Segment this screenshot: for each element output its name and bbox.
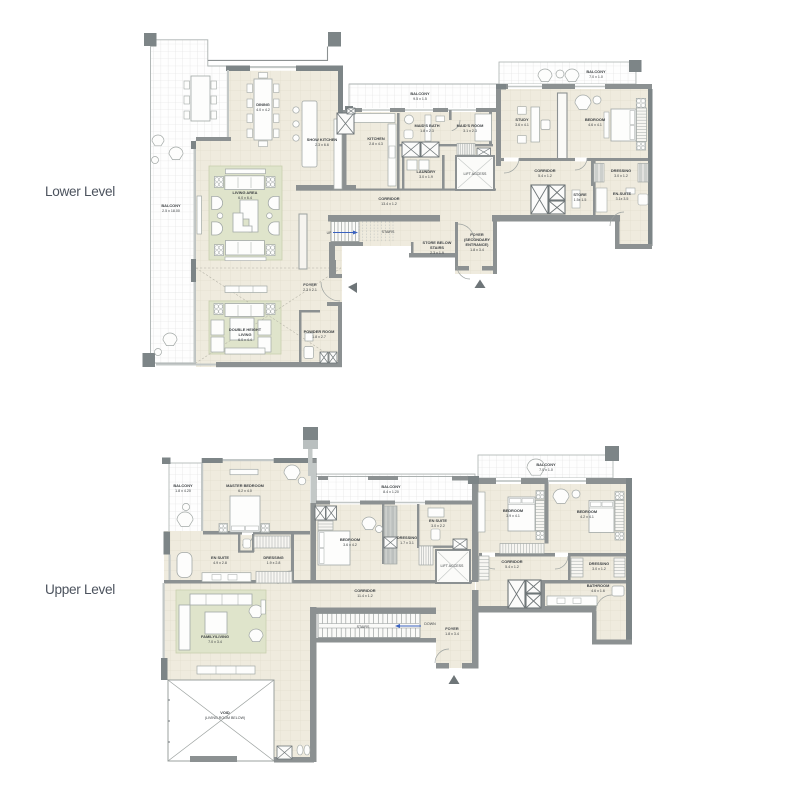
svg-text:DRESSING: DRESSING bbox=[589, 561, 609, 566]
svg-text:EN-SUITE: EN-SUITE bbox=[613, 191, 632, 196]
svg-text:2.3 x 1.9: 2.3 x 1.9 bbox=[430, 251, 444, 255]
svg-text:FOYER: FOYER bbox=[303, 282, 317, 287]
svg-text:3.0 x 2.2: 3.0 x 2.2 bbox=[431, 524, 445, 528]
svg-text:LAUNDRY: LAUNDRY bbox=[417, 169, 436, 174]
svg-text:2.3 x 2.1: 2.3 x 2.1 bbox=[303, 288, 317, 292]
svg-text:BATHROOM: BATHROOM bbox=[587, 583, 610, 588]
svg-text:LIVING: LIVING bbox=[239, 332, 252, 337]
svg-text:2.3 x 6.6: 2.3 x 6.6 bbox=[315, 143, 329, 147]
svg-text:4.9 x 2.8: 4.9 x 2.8 bbox=[213, 561, 227, 565]
svg-text:6.2 x 4.0: 6.2 x 4.0 bbox=[238, 489, 252, 493]
svg-text:VOID: VOID bbox=[220, 710, 230, 715]
svg-text:MAID'S ROOM: MAID'S ROOM bbox=[457, 123, 484, 128]
svg-text:3.6 x 4.1: 3.6 x 4.1 bbox=[515, 123, 529, 127]
svg-text:3.6 x 4.2: 3.6 x 4.2 bbox=[343, 543, 357, 547]
svg-text:Lower Level: Lower Level bbox=[45, 184, 115, 199]
svg-text:CORRIDOR: CORRIDOR bbox=[534, 168, 555, 173]
svg-text:KITCHEN: KITCHEN bbox=[367, 136, 384, 141]
svg-text:1.8 x 2.3: 1.8 x 2.3 bbox=[420, 129, 434, 133]
svg-text:DINING: DINING bbox=[256, 102, 270, 107]
svg-text:EN SUITE: EN SUITE bbox=[211, 555, 229, 560]
svg-text:POWDER ROOM: POWDER ROOM bbox=[304, 329, 335, 334]
svg-text:3.1x 3.5: 3.1x 3.5 bbox=[616, 197, 629, 201]
svg-text:1.7 x 3.1: 1.7 x 3.1 bbox=[400, 541, 414, 545]
svg-text:DRESSING: DRESSING bbox=[397, 535, 417, 540]
svg-text:FAMILY/LIVING: FAMILY/LIVING bbox=[201, 634, 229, 639]
svg-text:5.4 x 1.2: 5.4 x 1.2 bbox=[538, 174, 552, 178]
svg-text:1.8 x 2.7: 1.8 x 2.7 bbox=[312, 335, 326, 339]
svg-text:STUDY: STUDY bbox=[515, 117, 529, 122]
svg-text:7.0 x 1.0: 7.0 x 1.0 bbox=[539, 468, 553, 472]
svg-text:LIFT ACCESS: LIFT ACCESS bbox=[464, 172, 488, 176]
svg-text:BALCONY: BALCONY bbox=[586, 69, 606, 74]
svg-text:6.0 x 4.4: 6.0 x 4.4 bbox=[238, 338, 252, 342]
svg-text:7.0 x 3.4: 7.0 x 3.4 bbox=[208, 640, 222, 644]
svg-text:SHOW KITCHEN: SHOW KITCHEN bbox=[307, 137, 338, 142]
svg-text:CORRIDOR: CORRIDOR bbox=[378, 196, 399, 201]
svg-text:DRESSING: DRESSING bbox=[263, 555, 283, 560]
svg-text:8.4 x 1.20: 8.4 x 1.20 bbox=[383, 490, 399, 494]
svg-text:UP: UP bbox=[327, 231, 332, 235]
svg-text:BEDROOM: BEDROOM bbox=[577, 509, 597, 514]
svg-text:DOWN: DOWN bbox=[424, 622, 436, 626]
svg-text:4.6 x 1.6: 4.6 x 1.6 bbox=[591, 589, 605, 593]
svg-text:CORRIDOR: CORRIDOR bbox=[501, 559, 522, 564]
svg-text:EN SUITE: EN SUITE bbox=[429, 518, 447, 523]
svg-text:4.6 x 4.1: 4.6 x 4.1 bbox=[588, 123, 602, 127]
svg-text:9.5 x 1.5: 9.5 x 1.5 bbox=[413, 97, 427, 101]
svg-text:3.1 x 2.3: 3.1 x 2.3 bbox=[463, 129, 477, 133]
svg-text:LIVING AREA: LIVING AREA bbox=[233, 190, 258, 195]
svg-text:3.0 x 1.2: 3.0 x 1.2 bbox=[592, 567, 606, 571]
svg-text:STAIRS: STAIRS bbox=[357, 625, 370, 629]
svg-text:ENTRANCE): ENTRANCE) bbox=[466, 242, 490, 247]
svg-text:2.5 x 18.00: 2.5 x 18.00 bbox=[162, 209, 180, 213]
svg-text:3.0 x 1.2: 3.0 x 1.2 bbox=[614, 174, 628, 178]
svg-text:BALCONY: BALCONY bbox=[161, 203, 181, 208]
svg-text:BEDROOM: BEDROOM bbox=[585, 117, 605, 122]
svg-text:11.4 x 1.2: 11.4 x 1.2 bbox=[357, 594, 373, 598]
svg-text:5.4 x 1.2: 5.4 x 1.2 bbox=[505, 565, 519, 569]
svg-text:DRESSING: DRESSING bbox=[611, 168, 631, 173]
svg-text:STAIRS: STAIRS bbox=[430, 245, 444, 250]
svg-text:1.5x 1.5: 1.5x 1.5 bbox=[574, 198, 587, 202]
svg-text:BALCONY: BALCONY bbox=[173, 483, 193, 488]
svg-text:2.8 x 4.3: 2.8 x 4.3 bbox=[369, 142, 383, 146]
svg-text:1.8 x 3.4: 1.8 x 3.4 bbox=[445, 632, 459, 636]
svg-text:13.4 x 1.2: 13.4 x 1.2 bbox=[381, 202, 397, 206]
svg-text:STAIRS: STAIRS bbox=[382, 230, 395, 234]
svg-text:Upper Level: Upper Level bbox=[45, 582, 115, 597]
svg-text:1.8 x 4.20: 1.8 x 4.20 bbox=[175, 489, 191, 493]
svg-text:4.0 x 4.2: 4.0 x 4.2 bbox=[256, 108, 270, 112]
svg-text:3.9 x 4.1: 3.9 x 4.1 bbox=[506, 514, 520, 518]
svg-text:BALCONY: BALCONY bbox=[536, 462, 556, 467]
svg-text:BALCONY: BALCONY bbox=[381, 484, 401, 489]
svg-text:MAID'S BATH: MAID'S BATH bbox=[414, 123, 439, 128]
svg-text:1.8 x 3.4: 1.8 x 3.4 bbox=[470, 248, 484, 252]
svg-text:1.9 x 2.8: 1.9 x 2.8 bbox=[267, 561, 281, 565]
svg-text:BALCONY: BALCONY bbox=[410, 91, 430, 96]
svg-text:STORE: STORE bbox=[573, 192, 587, 197]
svg-text:FOYER: FOYER bbox=[445, 626, 459, 631]
svg-text:(LIVING ROOM BELOW): (LIVING ROOM BELOW) bbox=[205, 716, 245, 720]
svg-text:MASTER BEDROOM: MASTER BEDROOM bbox=[226, 483, 264, 488]
svg-text:BEDROOM: BEDROOM bbox=[503, 508, 523, 513]
svg-text:LIFT ACCESS: LIFT ACCESS bbox=[441, 564, 465, 568]
svg-text:BEDROOM: BEDROOM bbox=[340, 537, 360, 542]
svg-text:4.2 x 4.1: 4.2 x 4.1 bbox=[580, 515, 594, 519]
svg-text:3.0 x 1.9: 3.0 x 1.9 bbox=[419, 175, 433, 179]
svg-text:6.0 x 6.4: 6.0 x 6.4 bbox=[238, 196, 252, 200]
svg-text:7.0 x 1.0: 7.0 x 1.0 bbox=[589, 75, 603, 79]
svg-text:CORRIDOR: CORRIDOR bbox=[354, 588, 375, 593]
